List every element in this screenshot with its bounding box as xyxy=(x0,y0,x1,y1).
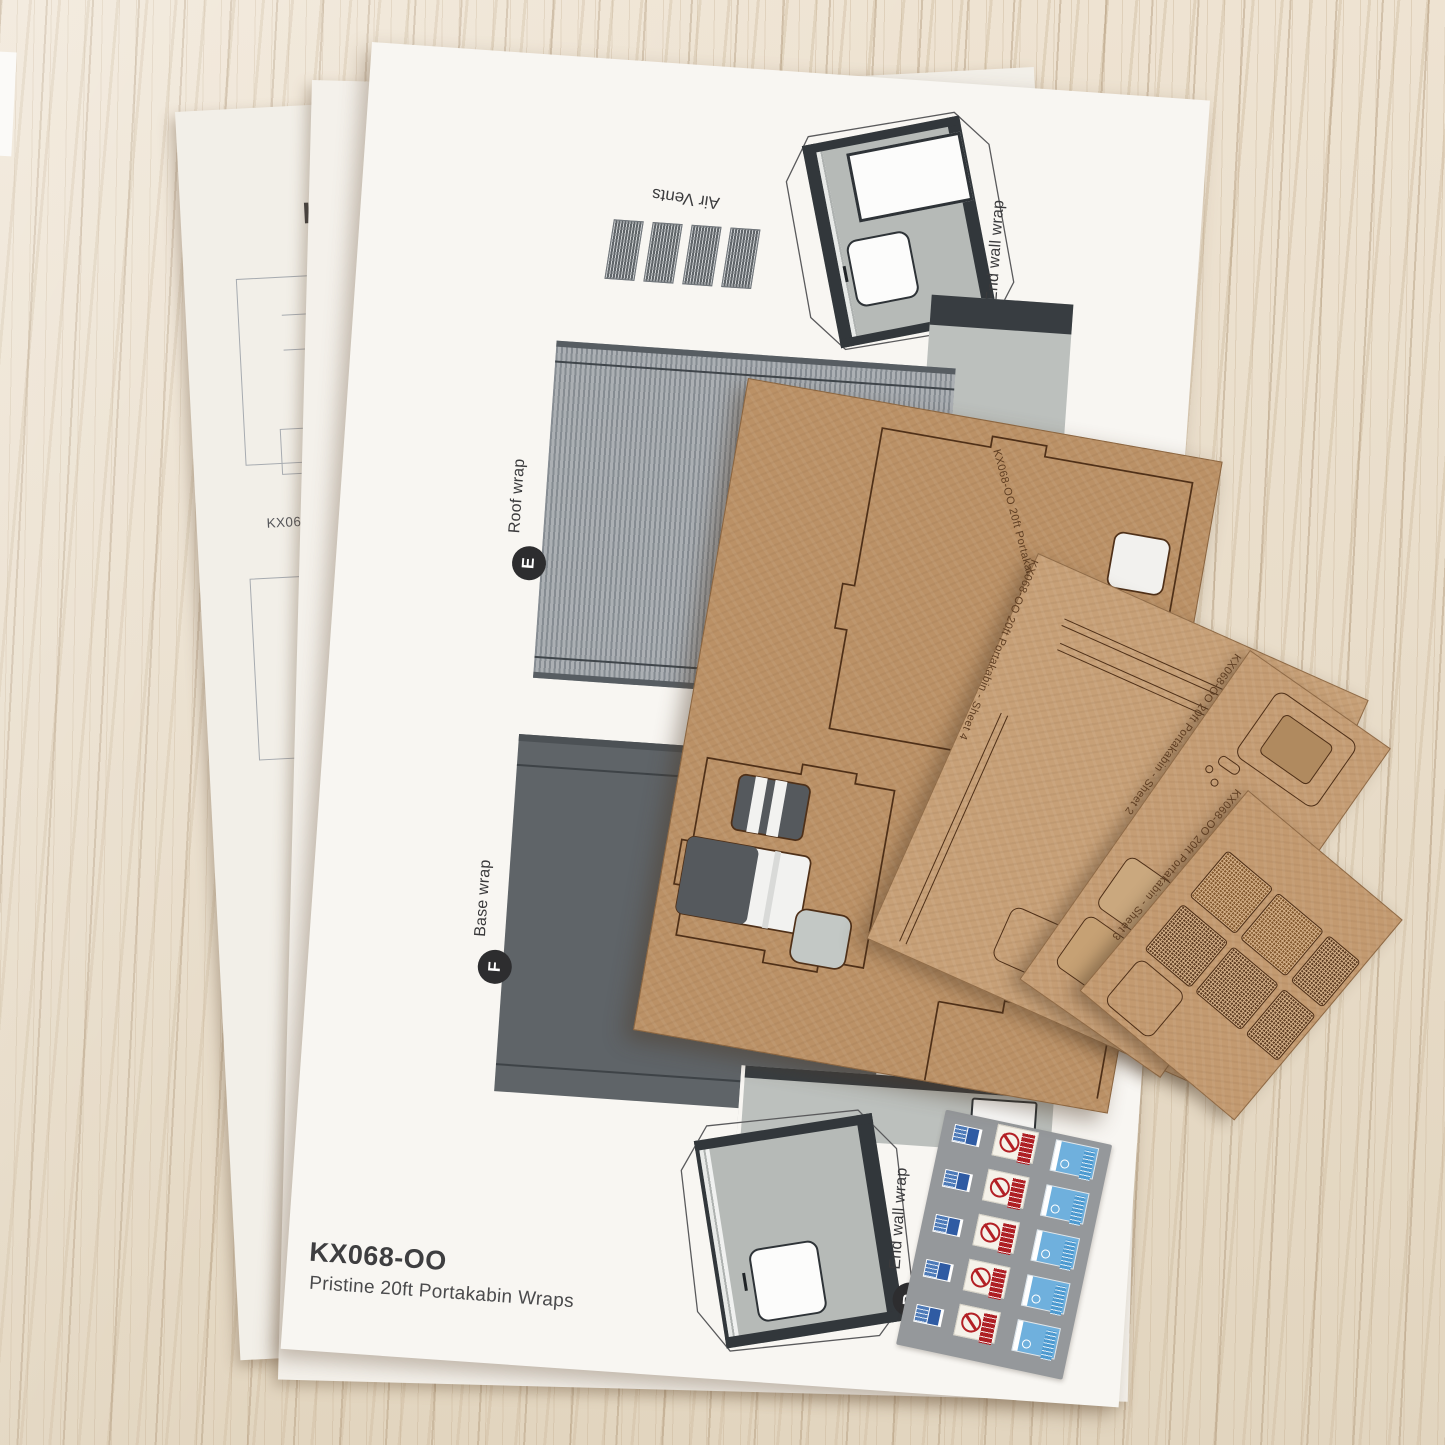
decal-glyph xyxy=(965,1128,979,1146)
product-code: KX068-OO xyxy=(308,1237,447,1278)
rounded-cutout xyxy=(788,908,853,971)
safety-notice-decal xyxy=(1011,1319,1061,1359)
decal-text-band xyxy=(1066,1191,1088,1229)
square-cutout xyxy=(1106,531,1171,596)
decal-glyph xyxy=(937,1263,951,1281)
door-window xyxy=(845,229,921,308)
decal-glyph xyxy=(956,1173,970,1191)
end-wall-panel xyxy=(694,1113,905,1349)
label-f-text: Base wrap xyxy=(472,859,495,937)
decal-text-band xyxy=(1057,1236,1079,1274)
decal-text-band xyxy=(1076,1146,1098,1184)
product-name: Pristine 20ft Portakabin Wraps xyxy=(308,1273,574,1313)
blue-sign-decal xyxy=(913,1304,944,1327)
blue-sign-decal xyxy=(951,1124,982,1147)
air-vents-label: Air Vents xyxy=(611,178,760,218)
air-vent-piece xyxy=(643,222,682,284)
door-handle xyxy=(742,1273,748,1291)
dot-cutout xyxy=(1204,764,1215,775)
air-vent-row xyxy=(607,219,758,289)
window-cutout xyxy=(675,836,812,935)
safety-notice-decal xyxy=(1030,1229,1080,1269)
mandatory-icon xyxy=(1021,1339,1032,1350)
photo-scene: Kit KX068-OO Air Vents xyxy=(0,0,1445,1445)
safety-notice-decal xyxy=(1040,1184,1090,1224)
no-entry-sign-decal xyxy=(972,1214,1020,1254)
dot-cutout xyxy=(1209,777,1220,788)
blue-sign-decal xyxy=(942,1169,973,1192)
decal-glyph xyxy=(927,1308,941,1326)
label-e-text: Roof wrap xyxy=(506,458,529,534)
decal-sheet xyxy=(896,1110,1112,1380)
blue-sign-decal xyxy=(932,1214,963,1237)
air-vent-piece xyxy=(682,225,721,287)
window xyxy=(846,132,973,223)
mandatory-icon xyxy=(1031,1294,1042,1305)
safety-notice-decal xyxy=(1021,1274,1071,1314)
decal-glyph xyxy=(946,1218,960,1236)
no-entry-sign-decal xyxy=(991,1124,1039,1164)
no-entry-sign-decal xyxy=(963,1259,1011,1299)
side-wall-frame xyxy=(930,295,1074,335)
mandatory-icon xyxy=(1059,1159,1070,1170)
decal-text-band xyxy=(1038,1326,1060,1364)
safety-notice-decal xyxy=(1050,1139,1100,1179)
no-entry-sign-decal xyxy=(982,1169,1030,1209)
window-cutout xyxy=(730,774,811,842)
air-vent-piece xyxy=(721,227,760,289)
mandatory-icon xyxy=(1040,1249,1051,1260)
mandatory-icon xyxy=(1050,1204,1061,1215)
blue-sign-decal xyxy=(923,1259,954,1282)
no-entry-sign-decal xyxy=(953,1304,1001,1344)
door-window xyxy=(748,1239,829,1323)
decal-text-band xyxy=(1047,1281,1069,1319)
air-vent-piece xyxy=(604,219,643,281)
paper-edge-sliver xyxy=(0,52,17,157)
